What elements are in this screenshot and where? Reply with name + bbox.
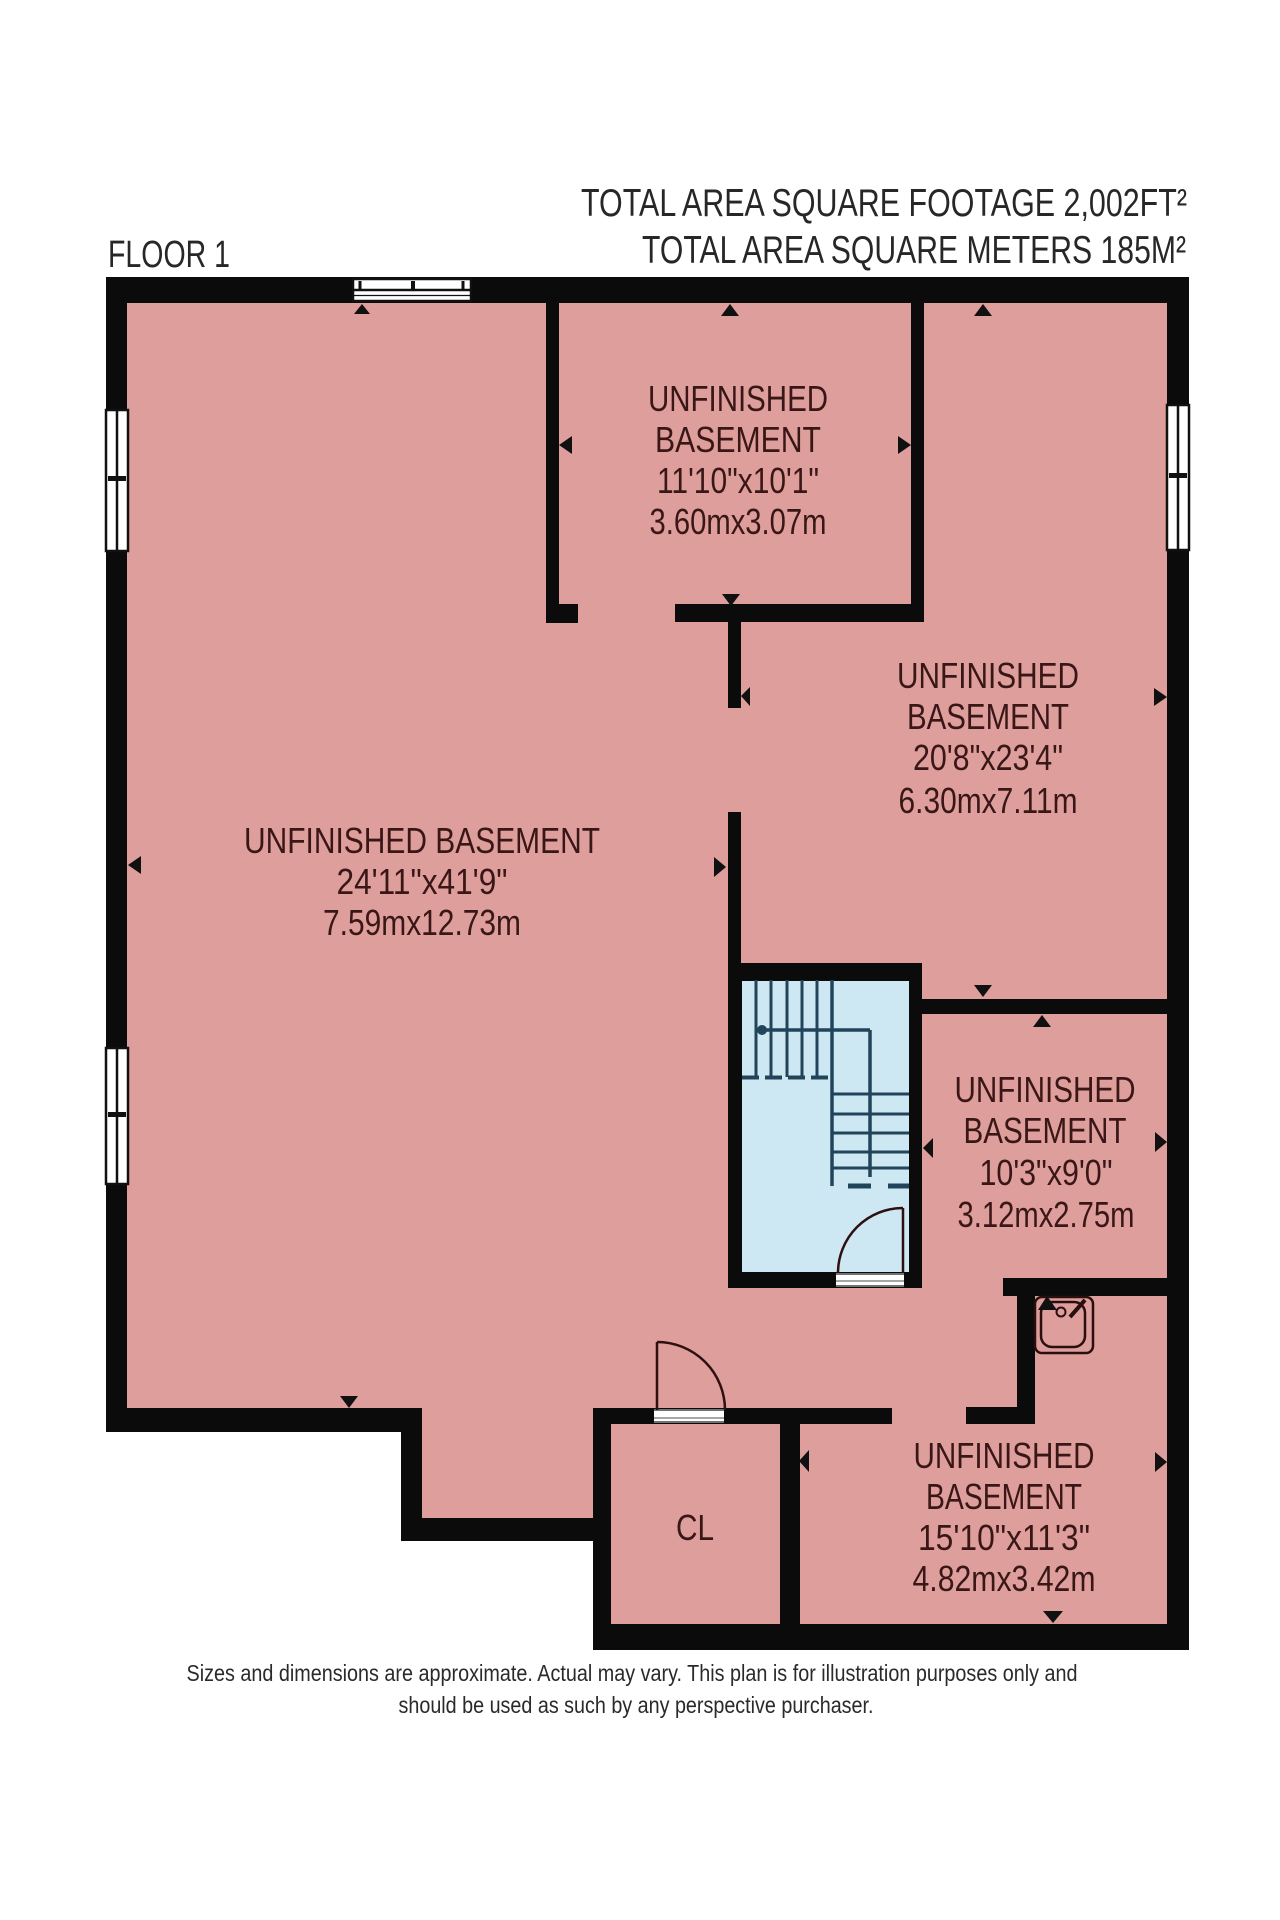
svg-text:20'8"x23'4": 20'8"x23'4": [913, 737, 1063, 778]
svg-text:15'10"x11'3": 15'10"x11'3": [918, 1517, 1090, 1558]
svg-text:FLOOR 1: FLOOR 1: [108, 234, 230, 276]
svg-text:UNFINISHED: UNFINISHED: [914, 1435, 1095, 1476]
svg-text:CL: CL: [676, 1507, 714, 1548]
svg-text:UNFINISHED: UNFINISHED: [648, 378, 828, 419]
svg-text:7.59mx12.73m: 7.59mx12.73m: [323, 902, 521, 943]
svg-text:TOTAL AREA SQUARE FOOTAGE 2,00: TOTAL AREA SQUARE FOOTAGE 2,002FT²: [581, 182, 1187, 225]
svg-text:3.12mx2.75m: 3.12mx2.75m: [958, 1194, 1135, 1235]
svg-text:6.30mx7.11m: 6.30mx7.11m: [899, 780, 1078, 821]
svg-text:should be used as such by any: should be used as such by any perspectiv…: [399, 1692, 874, 1718]
svg-text:UNFINISHED: UNFINISHED: [955, 1069, 1136, 1110]
svg-text:24'11"x41'9": 24'11"x41'9": [337, 861, 508, 902]
svg-text:3.60mx3.07m: 3.60mx3.07m: [650, 501, 827, 542]
svg-text:10'3"x9'0": 10'3"x9'0": [980, 1152, 1113, 1193]
svg-text:BASEMENT: BASEMENT: [926, 1476, 1082, 1517]
svg-text:Sizes and dimensions are appro: Sizes and dimensions are approximate. Ac…: [187, 1660, 1078, 1686]
svg-text:BASEMENT: BASEMENT: [655, 419, 821, 460]
svg-text:UNFINISHED: UNFINISHED: [897, 655, 1079, 696]
svg-text:BASEMENT: BASEMENT: [964, 1110, 1127, 1151]
svg-text:4.82mx3.42m: 4.82mx3.42m: [913, 1558, 1096, 1599]
svg-text:11'10"x10'1": 11'10"x10'1": [657, 460, 819, 501]
svg-text:TOTAL AREA SQUARE METERS 185M²: TOTAL AREA SQUARE METERS 185M²: [642, 229, 1186, 272]
svg-text:BASEMENT: BASEMENT: [907, 696, 1069, 737]
svg-text:UNFINISHED BASEMENT: UNFINISHED BASEMENT: [244, 820, 600, 861]
